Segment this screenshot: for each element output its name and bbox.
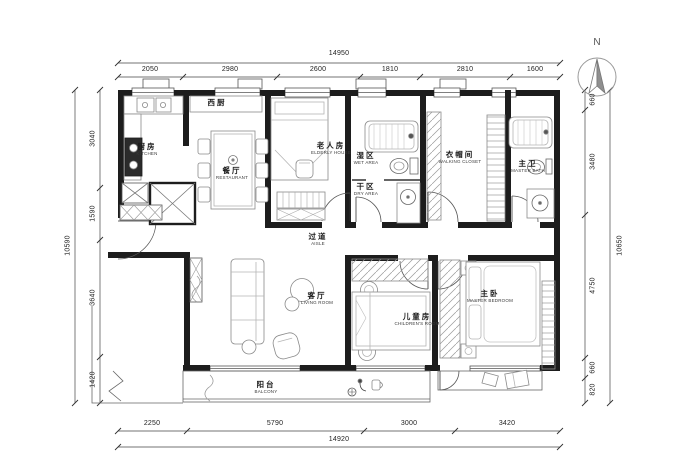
balcony-plant [205, 375, 213, 401]
master-wardrobe [440, 260, 460, 358]
closet-wardrobe [427, 112, 441, 220]
children-desk [352, 259, 428, 281]
entry-cabinet [120, 205, 162, 220]
dining-table [198, 131, 268, 209]
dim-bottom-seg-1: 5790 [253, 419, 297, 428]
dim-right-seg-1: 3480 [589, 144, 598, 180]
children-bed [352, 292, 430, 350]
pendant-light-icon [229, 156, 238, 165]
dry-area-door [356, 197, 381, 222]
elderly-bench [277, 192, 325, 208]
balcony-door [440, 371, 459, 390]
dim-right-seg-4: 820 [589, 372, 598, 408]
coffee-table [285, 279, 314, 312]
dim-left-overall: 10590 [64, 223, 73, 269]
lounge-chair [271, 331, 301, 361]
mug [372, 380, 383, 390]
dim-right-overall: 10650 [616, 223, 625, 269]
dim-top-seg-2: 2600 [296, 65, 340, 74]
faucet [358, 379, 366, 391]
dim-right-seg-2: 4750 [589, 268, 598, 304]
elderly-cabinet [277, 209, 325, 220]
toilet-wet [390, 158, 418, 174]
dim-bottom-seg-3: 3420 [485, 419, 529, 428]
west-kitchen-counter [190, 96, 262, 112]
vanity-dry [397, 183, 420, 223]
radiator [542, 281, 555, 369]
compass-north-label: N [589, 37, 605, 48]
dim-bottom-seg-2: 3000 [387, 419, 431, 428]
sofa [231, 259, 264, 344]
dim-top-overall: 14950 [316, 49, 362, 58]
stove [125, 138, 142, 176]
side-stool [242, 340, 256, 354]
dim-left-seg-2: 3640 [89, 280, 98, 316]
utility-shaft [122, 183, 148, 203]
floorplan-drawing [0, 0, 690, 467]
dim-bottom-seg-0: 2250 [130, 419, 174, 428]
floorplan-page: N 14950 2050 2980 2600 1810 2810 1600 22… [0, 0, 690, 467]
dim-left-seg-1: 1590 [89, 196, 98, 232]
shower [527, 189, 554, 218]
master-bed [466, 262, 540, 346]
dim-top-seg-5: 1600 [513, 65, 557, 74]
dim-left-seg-0: 3040 [89, 121, 98, 157]
exterior-outline [92, 305, 183, 403]
toilet-master [528, 159, 553, 174]
dim-left-seg-3: 1420 [89, 362, 98, 398]
balcony-lounge [505, 370, 529, 389]
dim-right-seg-0: 660 [589, 82, 598, 118]
floor-drain [348, 388, 356, 396]
bathtub-master [509, 117, 552, 148]
closet-shelving [487, 115, 505, 221]
dim-top-seg-1: 2980 [208, 65, 252, 74]
dim-bottom-overall: 14920 [316, 435, 362, 444]
dim-top-seg-0: 2050 [128, 65, 172, 74]
bathtub-wet [365, 121, 418, 152]
dim-top-seg-4: 2810 [443, 65, 487, 74]
balcony-table [482, 372, 498, 386]
break-line [109, 371, 123, 401]
elderly-chair [296, 160, 313, 178]
dim-top-seg-3: 1810 [368, 65, 412, 74]
